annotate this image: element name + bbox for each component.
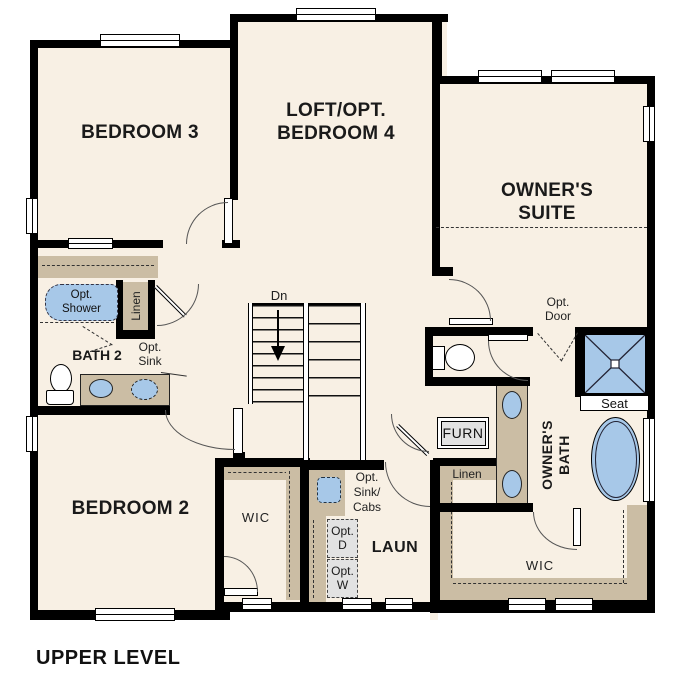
wall — [430, 460, 440, 610]
room-label-bedroom2: BEDROOM 2 — [48, 498, 213, 521]
owners-wic-shelf-right — [627, 505, 647, 600]
stair-rail — [360, 303, 366, 460]
shelf-dashed-line — [42, 265, 154, 266]
sink — [502, 470, 522, 498]
wall — [300, 458, 309, 610]
laundry-strip — [309, 516, 326, 602]
window — [242, 598, 272, 610]
room-label-laundry: LAUN — [368, 538, 422, 557]
window — [508, 598, 546, 611]
opt-dryer-label: Opt. — [331, 524, 354, 538]
opt-shower-tub: Opt. Shower — [45, 284, 118, 321]
window — [95, 608, 175, 621]
shower — [583, 333, 647, 395]
wall — [430, 503, 533, 512]
stairs-down-label: Dn — [264, 288, 294, 304]
stair-rail — [248, 303, 253, 404]
laundry-opt-sink — [317, 477, 341, 503]
bathtub-inner-line — [595, 421, 637, 498]
window — [643, 106, 655, 142]
toilet-tank — [46, 390, 74, 405]
furnace-inner: FURN — [441, 421, 486, 446]
exterior-margin — [0, 0, 30, 687]
opt-door-label: Opt. Door — [538, 295, 578, 324]
stair-flight-right — [309, 305, 360, 397]
opt-sink-label-line: Opt. — [128, 340, 172, 354]
toilet-bowl — [50, 364, 72, 393]
wall — [432, 14, 442, 84]
wall — [432, 84, 440, 275]
wall — [30, 240, 68, 248]
wall — [433, 458, 496, 466]
plan-title: UPPER LEVEL — [36, 646, 256, 670]
sink — [502, 391, 522, 419]
linen-bath2-label: Linen — [111, 281, 161, 331]
room-label-wic-center: WIC — [233, 510, 279, 526]
owners-bath-label-line: BATH — [556, 420, 573, 490]
floor-plan: Opt. Shower Seat FURN Opt. D Opt. — [0, 0, 687, 687]
toilet-tank — [432, 346, 445, 370]
stair-down-arrow-shaft — [277, 310, 279, 348]
opt-dryer: Opt. D — [327, 519, 358, 558]
opt-sink-cabs-line: Sink/ — [344, 485, 390, 500]
window — [643, 418, 655, 502]
room-label-loft: LOFT/OPT. BEDROOM 4 — [255, 100, 417, 146]
opt-dryer-label: D — [338, 538, 347, 552]
owners-wic-shelf-bottom — [436, 578, 647, 600]
room-label-bedroom3: BEDROOM 3 — [60, 122, 220, 145]
opt-door-label-line: Opt. — [538, 295, 578, 309]
shower-seat: Seat — [580, 395, 649, 411]
exterior-notch — [438, 613, 655, 620]
opt-sink-cabs-line: Opt. — [344, 470, 390, 485]
wic-shelf-dashed — [289, 471, 290, 597]
opt-washer-label: W — [337, 578, 348, 592]
wall — [575, 327, 583, 397]
opt-washer-label: Opt. — [331, 564, 354, 578]
room-label-wic-owners: WIC — [517, 558, 563, 574]
exterior-margin — [655, 0, 687, 687]
wall — [30, 40, 38, 620]
window — [26, 198, 38, 234]
wall — [215, 458, 224, 610]
furnace-label: FURN — [443, 425, 484, 441]
owners-wic-dashed — [623, 510, 624, 583]
wall — [432, 76, 655, 84]
window — [342, 598, 372, 610]
wall — [113, 240, 163, 248]
stair-down-arrow-head — [271, 346, 285, 361]
wall — [215, 458, 310, 467]
stair-rail — [303, 303, 309, 460]
exterior-notch — [230, 612, 430, 620]
linen-owners-label: Linen — [440, 467, 494, 481]
bath2-shelf — [38, 256, 158, 278]
window — [551, 70, 615, 83]
opt-door-label-line: Door — [538, 309, 578, 323]
exterior-notch — [447, 0, 687, 77]
wall — [30, 406, 170, 415]
sink — [89, 379, 113, 398]
owners-bath-label-line: OWNER'S — [539, 420, 556, 490]
opt-shower-dashed — [40, 322, 114, 323]
cased-opening — [68, 238, 113, 249]
wall — [300, 460, 384, 470]
seat-label: Seat — [601, 396, 628, 411]
room-label-owners-suite: OWNER'S SUITE — [468, 180, 626, 226]
wall — [116, 330, 155, 339]
laundry-strip-dashed — [313, 520, 314, 598]
loft-label-line: LOFT/OPT. — [255, 100, 417, 123]
wall — [230, 48, 238, 200]
owners-wic-dashed — [451, 482, 452, 578]
wall — [647, 76, 655, 613]
opt-sink-fixture — [131, 379, 158, 400]
owners-suite-label-line: OWNER'S — [468, 180, 626, 203]
opt-sink-cabs-line: Cabs — [344, 500, 390, 515]
opt-shower-label: Opt. — [71, 289, 93, 302]
bathtub — [591, 417, 640, 501]
linen-label-text: Linen — [129, 291, 143, 320]
owners-wic-dashed — [453, 583, 627, 584]
window — [478, 70, 542, 83]
window — [385, 598, 413, 610]
owners-suite-label-line: SUITE — [468, 203, 626, 226]
loft-label-line: BEDROOM 4 — [255, 123, 417, 146]
window — [100, 34, 180, 47]
opt-sink-cabs-label: Opt. Sink/ Cabs — [344, 470, 390, 515]
suite-dashed-line — [436, 227, 647, 228]
opt-washer: Opt. W — [327, 559, 358, 598]
window — [296, 8, 376, 21]
window — [555, 598, 593, 611]
opt-sink-label: Opt. Sink — [128, 340, 172, 369]
opt-sink-label-line: Sink — [128, 354, 172, 368]
toilet-bowl — [445, 344, 475, 371]
opt-shower-label: Shower — [62, 303, 101, 316]
room-label-bath2: BATH 2 — [62, 347, 132, 364]
window — [26, 416, 38, 452]
furnace: FURN — [437, 417, 489, 449]
wall — [432, 267, 453, 276]
door-leaf — [488, 334, 528, 341]
shower-x-icon — [585, 335, 645, 393]
room-label-owners-bath: OWNER'S BATH — [536, 415, 576, 495]
